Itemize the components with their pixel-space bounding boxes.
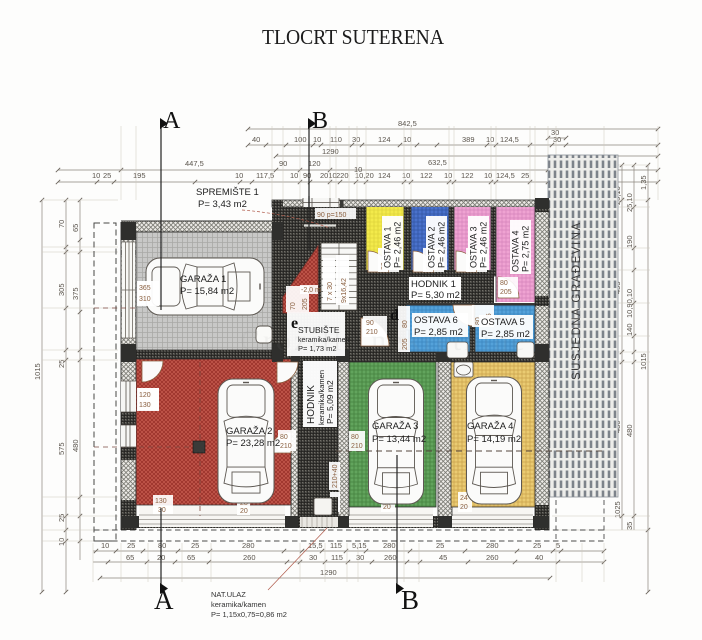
svg-text:10: 10 xyxy=(354,165,362,174)
svg-text:70: 70 xyxy=(290,302,297,310)
svg-text:842,5: 842,5 xyxy=(398,119,417,128)
svg-text:10: 10 xyxy=(444,171,452,180)
svg-text:P= 2,46 m2: P= 2,46 m2 xyxy=(479,222,489,268)
svg-text:keramika/kamen: keramika/kamen xyxy=(211,600,266,609)
svg-text:25,10: 25,10 xyxy=(625,193,634,212)
svg-text:480: 480 xyxy=(625,424,634,437)
svg-text:NAT.ULAZ: NAT.ULAZ xyxy=(211,590,246,599)
svg-text:30: 30 xyxy=(551,128,559,137)
svg-text:5: 5 xyxy=(556,541,560,550)
svg-text:7 x 30: 7 x 30 xyxy=(327,282,334,301)
svg-text:-2,0 m: -2,0 m xyxy=(301,287,321,294)
svg-text:d: d xyxy=(390,307,399,324)
svg-text:20: 20 xyxy=(460,504,468,511)
svg-text:25: 25 xyxy=(521,171,529,180)
svg-text:P= 15,84 m2: P= 15,84 m2 xyxy=(180,286,234,297)
svg-text:80: 80 xyxy=(351,434,359,441)
svg-text:1,35: 1,35 xyxy=(639,175,648,190)
svg-text:25: 25 xyxy=(191,541,199,550)
svg-text:130: 130 xyxy=(155,498,167,505)
svg-text:10: 10 xyxy=(101,541,109,550)
svg-text:1015: 1015 xyxy=(639,353,648,370)
svg-text:25: 25 xyxy=(127,541,135,550)
svg-text:24: 24 xyxy=(460,495,468,502)
svg-text:P= 13,44 m2: P= 13,44 m2 xyxy=(372,434,426,445)
svg-text:140: 140 xyxy=(625,323,634,336)
svg-text:195: 195 xyxy=(133,171,146,180)
svg-text:210: 210 xyxy=(351,443,363,450)
svg-text:GARAŽA 3: GARAŽA 3 xyxy=(372,421,418,432)
svg-text:100: 100 xyxy=(294,135,307,144)
svg-text:9x16,42: 9x16,42 xyxy=(341,278,348,303)
svg-text:447,5: 447,5 xyxy=(185,159,204,168)
svg-text:35: 35 xyxy=(625,522,634,530)
svg-text:375: 375 xyxy=(71,287,80,300)
svg-text:25: 25 xyxy=(436,541,444,550)
svg-text:220: 220 xyxy=(336,171,349,180)
svg-text:OSTAVA 1: OSTAVA 1 xyxy=(383,226,393,268)
svg-text:65: 65 xyxy=(187,553,195,562)
svg-text:30: 30 xyxy=(352,135,360,144)
svg-text:OSTAVA 3: OSTAVA 3 xyxy=(469,226,479,268)
svg-text:25: 25 xyxy=(57,360,66,368)
svg-text:40: 40 xyxy=(252,135,260,144)
svg-text:30: 30 xyxy=(356,553,364,562)
svg-text:25: 25 xyxy=(533,541,541,550)
svg-text:480: 480 xyxy=(71,439,80,452)
svg-text:P= 2,46 m2: P= 2,46 m2 xyxy=(437,222,447,268)
svg-text:TLOCRT SUTERENA: TLOCRT SUTERENA xyxy=(262,25,445,49)
svg-text:280: 280 xyxy=(486,541,499,550)
svg-text:280: 280 xyxy=(242,541,255,550)
svg-text:120: 120 xyxy=(139,392,151,399)
svg-text:365: 365 xyxy=(139,285,151,292)
svg-text:210+40: 210+40 xyxy=(332,464,339,488)
svg-text:GARAŽA 1: GARAŽA 1 xyxy=(180,274,226,285)
svg-text:280: 280 xyxy=(383,541,396,550)
svg-text:2010: 2010 xyxy=(320,171,337,180)
svg-text:OSTAVA 4: OSTAVA 4 xyxy=(511,230,521,272)
svg-text:40: 40 xyxy=(535,553,543,562)
svg-text:GARAŽA 4: GARAŽA 4 xyxy=(467,421,513,432)
svg-text:310: 310 xyxy=(139,296,151,303)
svg-text:20: 20 xyxy=(240,508,248,515)
svg-text:80: 80 xyxy=(158,541,166,550)
svg-text:25: 25 xyxy=(103,171,111,180)
svg-text:90: 90 xyxy=(303,171,311,180)
svg-text:260: 260 xyxy=(486,553,499,562)
svg-text:130: 130 xyxy=(139,402,151,409)
svg-text:A: A xyxy=(154,585,174,615)
svg-text:122: 122 xyxy=(461,171,474,180)
svg-text:HODNIK: HODNIK xyxy=(306,385,317,424)
svg-text:80: 80 xyxy=(500,280,508,287)
svg-text:A: A xyxy=(163,108,181,134)
svg-text:25: 25 xyxy=(57,514,66,522)
svg-text:GARAŽA 2: GARAŽA 2 xyxy=(226,426,272,437)
svg-text:65: 65 xyxy=(71,224,80,232)
svg-text:120: 120 xyxy=(308,159,321,168)
svg-text:SPREMIŠTE 1: SPREMIŠTE 1 xyxy=(196,187,259,198)
svg-text:20: 20 xyxy=(383,504,391,511)
svg-text:1290: 1290 xyxy=(320,568,337,577)
svg-text:30: 30 xyxy=(158,507,166,514)
svg-text:10: 10 xyxy=(235,171,243,180)
svg-text:260: 260 xyxy=(243,553,256,562)
svg-text:B: B xyxy=(401,585,419,615)
svg-text:45: 45 xyxy=(439,553,447,562)
svg-text:117,5: 117,5 xyxy=(256,171,274,180)
svg-text:115: 115 xyxy=(330,541,342,550)
svg-text:P= 1,15x0,75=0,86 m2: P= 1,15x0,75=0,86 m2 xyxy=(211,610,287,619)
svg-text:210: 210 xyxy=(280,443,292,450)
svg-text:1025: 1025 xyxy=(613,501,622,518)
svg-text:10: 10 xyxy=(403,135,411,144)
svg-text:10: 10 xyxy=(290,171,298,180)
svg-text:10: 10 xyxy=(486,135,494,144)
svg-text:B: B xyxy=(312,108,328,134)
svg-text:OSTAVA 2: OSTAVA 2 xyxy=(427,226,437,268)
svg-text:P= 3,43 m2: P= 3,43 m2 xyxy=(198,199,247,210)
svg-text:P= 14,19 m2: P= 14,19 m2 xyxy=(467,434,521,445)
svg-text:389: 389 xyxy=(462,135,475,144)
svg-text:P= 5,09 m2: P= 5,09 m2 xyxy=(325,380,335,424)
svg-text:10: 10 xyxy=(313,135,321,144)
svg-text:115: 115 xyxy=(331,553,343,562)
svg-text:124: 124 xyxy=(378,171,391,180)
svg-text:10: 10 xyxy=(57,538,66,546)
svg-text:SUSJEDNA GRAĐEVINA: SUSJEDNA GRAĐEVINA xyxy=(571,221,583,380)
svg-text:P= 23,28 m2: P= 23,28 m2 xyxy=(226,438,280,449)
svg-text:80: 80 xyxy=(280,434,288,441)
svg-text:HODNIK 1: HODNIK 1 xyxy=(411,279,456,290)
svg-text:65: 65 xyxy=(126,553,134,562)
svg-text:205: 205 xyxy=(302,298,309,310)
svg-text:190: 190 xyxy=(625,235,634,248)
svg-text:260: 260 xyxy=(384,553,397,562)
svg-text:632,5: 632,5 xyxy=(428,158,447,167)
svg-text:124: 124 xyxy=(378,135,391,144)
svg-text:10: 10 xyxy=(92,171,100,180)
svg-text:5,15: 5,15 xyxy=(352,541,367,550)
svg-text:124,5: 124,5 xyxy=(500,135,519,144)
svg-text:P= 5,30 m2: P= 5,30 m2 xyxy=(411,290,460,301)
svg-text:575: 575 xyxy=(57,442,66,455)
svg-text:205: 205 xyxy=(500,289,512,296)
svg-text:30: 30 xyxy=(309,553,317,562)
svg-text:P= 2,46 m2: P= 2,46 m2 xyxy=(393,222,403,268)
svg-text:Crozilla nekretnine: Crozilla nekretnine xyxy=(240,324,528,357)
svg-text:124,5: 124,5 xyxy=(496,171,515,180)
svg-text:10: 10 xyxy=(402,171,410,180)
svg-text:70: 70 xyxy=(57,220,66,228)
svg-text:1015: 1015 xyxy=(33,363,42,380)
svg-text:90 p=150: 90 p=150 xyxy=(317,212,346,219)
svg-text:305: 305 xyxy=(57,283,66,296)
svg-text:10,90,10: 10,90,10 xyxy=(625,289,634,318)
svg-text:P= 2,75 m2: P= 2,75 m2 xyxy=(521,226,531,272)
svg-text:122: 122 xyxy=(420,171,433,180)
